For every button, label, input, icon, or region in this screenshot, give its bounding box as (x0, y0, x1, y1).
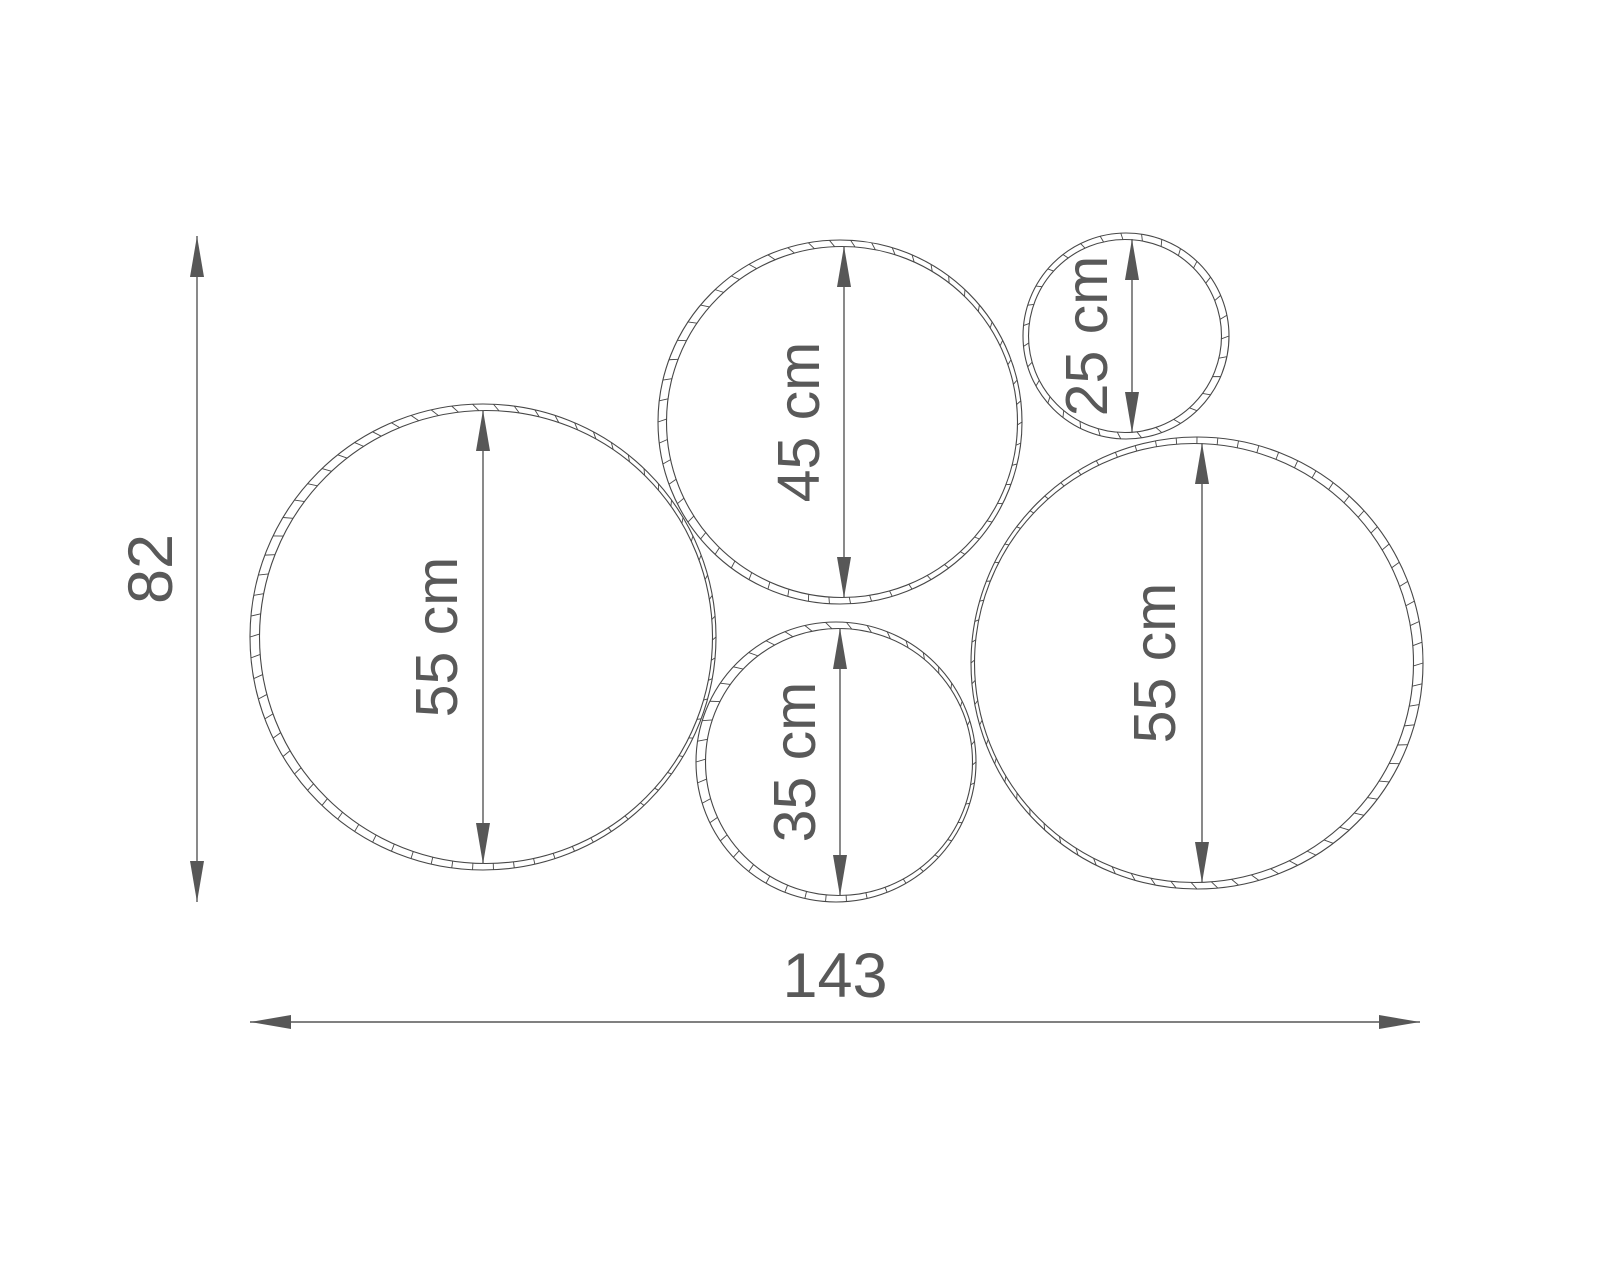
ring-inner-line (667, 247, 1018, 598)
overall-width-label: 143 (782, 941, 887, 1011)
ring-segment-ticks (971, 437, 1423, 889)
diameter-dimension-left-large (476, 410, 490, 864)
dimension-arrowhead-down (190, 861, 204, 902)
diameter-dimension-top-middle (837, 246, 851, 598)
dimension-arrowhead-up (1125, 239, 1139, 280)
diameter-label: 45 cm (766, 342, 832, 503)
ring-top-middle: 45 cm (658, 240, 1022, 604)
ring-top-right-small: 25 cm (1023, 233, 1229, 439)
diagram-svg: 55 cm45 cm25 cm35 cm55 cm82143 (0, 0, 1600, 1280)
dimension-arrowhead-up (190, 236, 204, 277)
diameter-dimension-right-large (1195, 443, 1209, 883)
ring-outer-line (971, 437, 1423, 889)
diameter-dimension-top-right-small (1125, 239, 1139, 433)
dimension-arrowhead-up (476, 410, 490, 451)
ring-left-large: 55 cm (250, 404, 716, 870)
diameter-dimension-bottom-middle (833, 628, 847, 896)
dimension-arrowhead-right (1379, 1015, 1420, 1029)
overall-height-dimension: 82 (116, 236, 204, 902)
wall-rings-dimension-drawing: 55 cm45 cm25 cm35 cm55 cm82143 (0, 0, 1600, 1280)
ring-inner-line (975, 444, 1414, 883)
dimension-arrowhead-left (250, 1015, 291, 1029)
dimension-arrowhead-down (1125, 392, 1139, 433)
dimension-arrowhead-up (833, 628, 847, 669)
ring-bottom-middle: 35 cm (696, 622, 976, 902)
ring-inner-line (260, 411, 713, 864)
dimension-arrowhead-up (1195, 443, 1209, 484)
diameter-label: 25 cm (1054, 256, 1120, 417)
overall-height-label: 82 (116, 534, 186, 604)
dimension-arrowhead-up (837, 246, 851, 287)
dimension-arrowhead-down (1195, 842, 1209, 883)
diameter-label: 35 cm (762, 682, 828, 843)
overall-width-dimension: 143 (250, 941, 1420, 1029)
diameter-label: 55 cm (1122, 583, 1188, 744)
dimension-arrowhead-down (833, 855, 847, 896)
dimension-arrowhead-down (837, 557, 851, 598)
ring-right-large: 55 cm (971, 437, 1423, 889)
dimension-arrowhead-down (476, 823, 490, 864)
ring-segment-ticks (658, 240, 1022, 603)
diameter-label: 55 cm (404, 557, 470, 718)
ring-outer-line (658, 240, 1022, 604)
